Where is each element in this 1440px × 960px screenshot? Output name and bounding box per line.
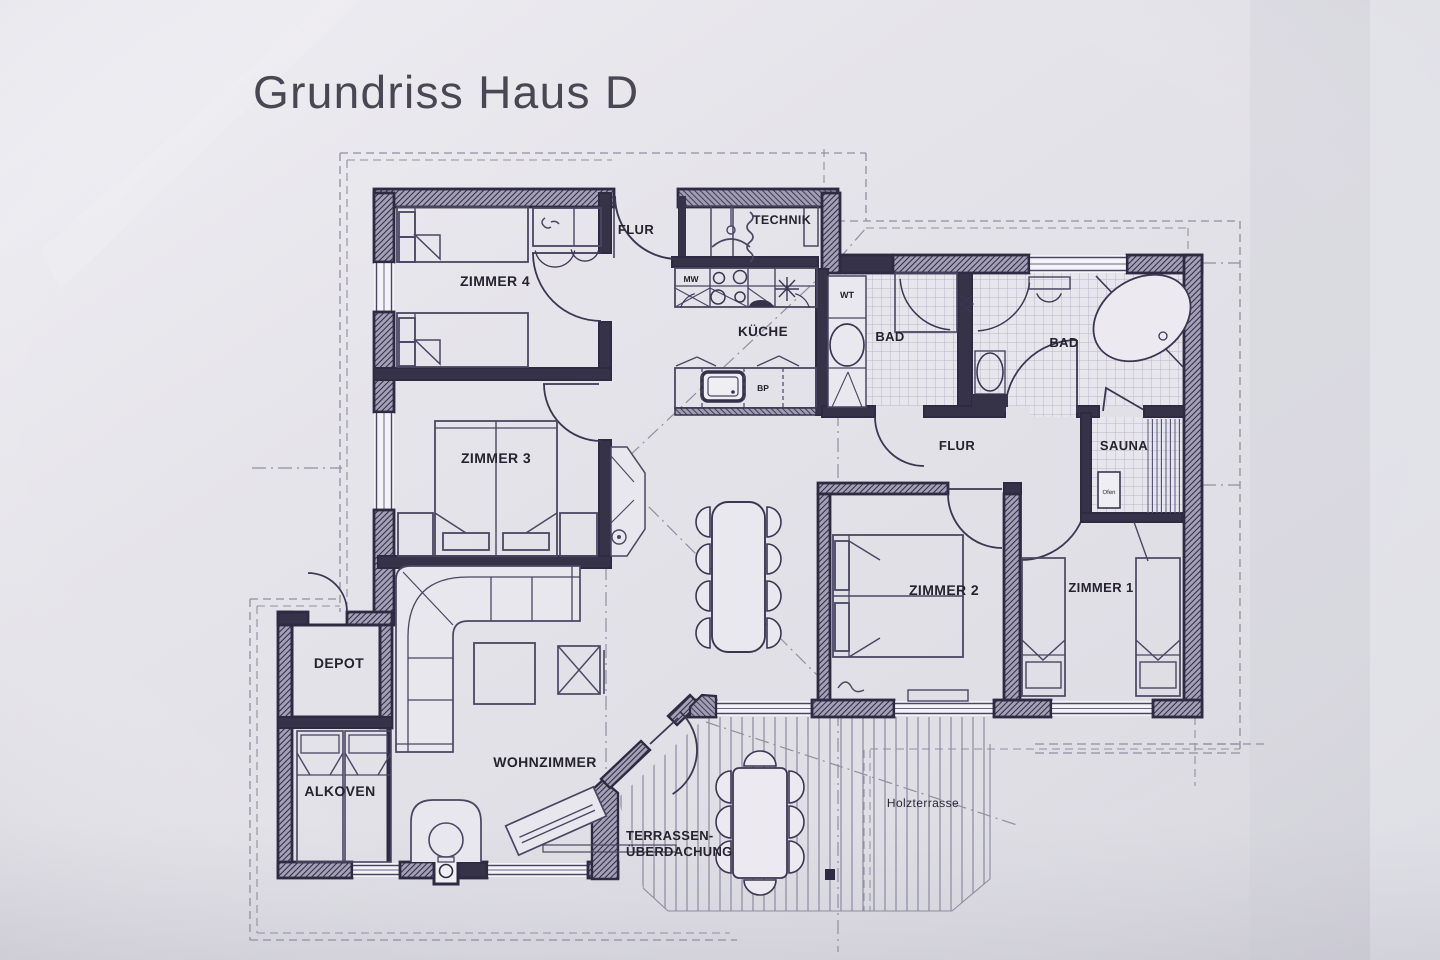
svg-text:ZIMMER 3: ZIMMER 3 — [461, 450, 531, 466]
svg-text:ZIMMER 4: ZIMMER 4 — [460, 273, 530, 289]
svg-text:Ofen: Ofen — [1102, 489, 1115, 496]
svg-text:TECHNIK: TECHNIK — [753, 213, 811, 227]
svg-text:MW: MW — [683, 274, 699, 284]
svg-text:TERRASSEN-: TERRASSEN- — [626, 828, 714, 843]
svg-text:SAUNA: SAUNA — [1100, 438, 1148, 453]
svg-text:Grundriss Haus D: Grundriss Haus D — [253, 66, 639, 118]
svg-text:ZIMMER 1: ZIMMER 1 — [1068, 580, 1133, 595]
svg-text:FLUR: FLUR — [618, 222, 654, 237]
svg-text:KÜCHE: KÜCHE — [738, 324, 788, 339]
svg-text:BP: BP — [757, 383, 769, 393]
svg-text:FLUR: FLUR — [939, 438, 975, 453]
svg-text:Holzterrasse: Holzterrasse — [887, 796, 959, 810]
svg-text:ÜBERDACHUNG: ÜBERDACHUNG — [626, 844, 733, 859]
svg-text:ALKOVEN: ALKOVEN — [304, 783, 375, 799]
svg-text:ZIMMER 2: ZIMMER 2 — [909, 582, 979, 598]
svg-text:WOHNZIMMER: WOHNZIMMER — [493, 754, 597, 770]
svg-text:DEPOT: DEPOT — [314, 655, 364, 671]
svg-text:WT: WT — [840, 290, 854, 300]
svg-text:BAD: BAD — [875, 329, 904, 344]
svg-text:BAD: BAD — [1049, 335, 1078, 350]
